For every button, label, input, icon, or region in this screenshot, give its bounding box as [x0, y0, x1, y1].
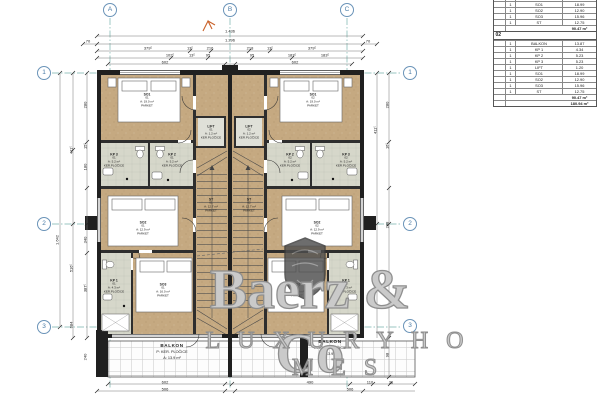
dim-top-overall: 1.436	[225, 29, 235, 34]
grid-bubble-c: C	[340, 3, 354, 17]
dim-right-seg: 16⁵	[385, 143, 390, 149]
room-label-kp1-left: KP 101 A: 4.3 m²KER.PLOČICE	[104, 278, 124, 294]
annotation-mark	[203, 21, 215, 31]
grid-bubble-3-left: 3	[37, 320, 51, 334]
dim-top-seg: 95	[206, 53, 210, 58]
table-row: 1 ST12.75	[494, 88, 596, 94]
dim-bottom-span: 506	[162, 387, 169, 392]
dim-top-seg: 13⁵	[187, 46, 193, 51]
grid-bubble-a: A	[103, 3, 117, 17]
table-row: 1 SO315.96	[494, 13, 596, 19]
dim-top-seg: 379⁵	[144, 46, 152, 51]
table-row: 1 SO212.90	[494, 7, 596, 13]
dim-top-seg: 379⁵	[308, 46, 316, 51]
dim-top-span-left: 602	[162, 59, 169, 64]
table-row: 1 SO118.99	[494, 1, 596, 7]
dim-left-seg: 387⁵	[83, 284, 88, 292]
room-label-kp2-left: KP 201 A: 5.2 m²KER.PLOČICE	[162, 152, 182, 168]
room-label-kp2-right: KP 202 A: 5.2 m²KER.PLOČICE	[280, 152, 300, 168]
room-label-lift-left: LIFT01 A: 1.2 m²KER.PLOČICE	[201, 124, 221, 140]
dim-bottom-span: 506	[347, 387, 354, 392]
grid-bubble-b: B	[223, 3, 237, 17]
dim-top-seg: 216	[207, 46, 214, 51]
dim-top-seg: 13⁵	[189, 53, 195, 58]
table-grand-total-row: 180.94 m²	[494, 100, 596, 106]
dim-right-seg: 288	[385, 222, 390, 229]
room-label-lift-right: LIFT02 A: 1.2 m²KER.PLOČICE	[239, 124, 259, 140]
area-schedule-table: 1 LIFT 1.20 1 SO118.99 1 SO212.90 1 SO31…	[493, 0, 597, 107]
dim-left-overall: 1.642	[55, 235, 60, 245]
floor-plan-sheet: A B C 1 2 3 1 2 3 1.436 1.296 70 70 379⁵…	[0, 0, 600, 400]
room-label-balkon-left: BALKON P: KER. PLOČICEA: 13.9 m²	[156, 343, 187, 361]
table-row: 1 BALKON13.87	[494, 40, 596, 46]
dim-left-mid: 516⁵	[69, 264, 74, 272]
dim-left-seg: 180	[83, 164, 88, 171]
dim-top-seg: 102⁵	[166, 53, 174, 58]
room-label-so2-left: SO201 A: 12.9 m²PARKET	[136, 220, 150, 236]
dim-left-mid: 684	[69, 322, 74, 329]
dim-left-seg: 280	[83, 102, 88, 109]
table-row: 1 SO212.90	[494, 76, 596, 82]
watermark-tagline: L U X U R Y H O M E S	[200, 328, 475, 382]
dim-top-seg: 95	[250, 53, 254, 58]
dim-right-seg: 280	[385, 102, 390, 109]
table-row: 1 KP 25.23	[494, 52, 596, 58]
dim-top-end-left: 70	[86, 39, 90, 44]
dim-bottom-seg: 602	[162, 379, 169, 384]
dim-top-span-right: 602	[292, 59, 299, 64]
dim-left-mid: 411⁵	[69, 146, 74, 154]
room-label-st-left: ST01 A: 12.7 m²PARKET	[204, 197, 218, 213]
dim-top-seg: 183⁵	[288, 53, 296, 58]
dim-top-seg: 218	[247, 46, 254, 51]
dim-right-mid: 411⁵	[373, 126, 378, 134]
dim-top-seg: 183⁵	[321, 53, 329, 58]
grid-bubble-1-left: 1	[37, 66, 51, 80]
table-row: 1 LIFT1.20	[494, 64, 596, 70]
room-label-kp3-right: KP 302 A: 5.2 m²KER.PLOČICE	[336, 152, 356, 168]
table-row: 1 LIFT 1.20	[494, 0, 596, 1]
dim-top-seg: 13⁵	[267, 46, 273, 51]
table-section-header-02: 02	[494, 31, 596, 40]
table-row: 1 KP 14.34	[494, 46, 596, 52]
table-row: 1 KP 35.23	[494, 58, 596, 64]
table-row: 1 SO118.99	[494, 70, 596, 76]
grid-bubble-2-right: 2	[403, 217, 417, 231]
dim-left-seg: 15⁵	[83, 143, 88, 149]
table-row: 1 ST12.75	[494, 19, 596, 25]
room-label-so1-right: SO102 A: 19.0 m²PARKET	[306, 92, 320, 108]
room-label-so1-left: SO101 A: 19.0 m²PARKET	[140, 92, 154, 108]
table-row: 1 SO315.96	[494, 82, 596, 88]
grid-bubble-1-right: 1	[403, 66, 417, 80]
dim-top-end-right: 70	[366, 39, 370, 44]
room-label-so2-right: SO202 A: 12.9 m²PARKET	[310, 220, 324, 236]
dim-left-seg: 340	[83, 237, 88, 244]
room-label-st-right: ST02 A: 12.7 m²PARKET	[242, 197, 256, 213]
grid-bubble-2-left: 2	[37, 217, 51, 231]
dim-top-inner: 1.296	[225, 38, 235, 43]
room-label-so3-left: SO301 A: 16.0 m²PARKET	[156, 282, 170, 298]
dim-left-seg: 240	[83, 354, 88, 361]
room-label-kp3-left: KP 301 A: 5.2 m²KER.PLOČICE	[104, 152, 124, 168]
